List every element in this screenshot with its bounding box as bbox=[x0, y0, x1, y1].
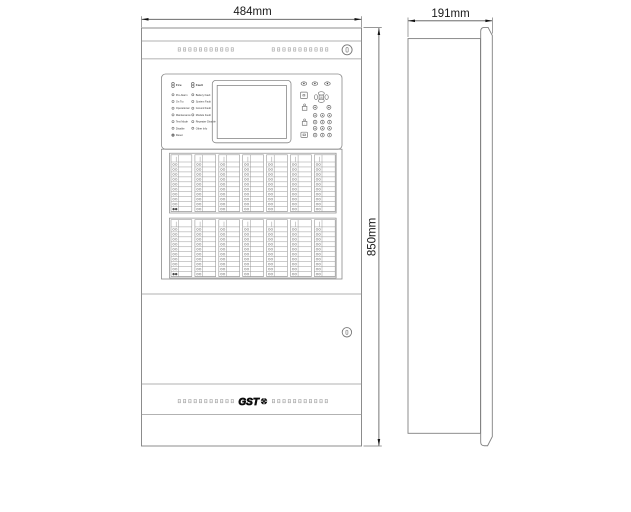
svg-text:On Try: On Try bbox=[176, 100, 184, 104]
svg-text:Reset: Reset bbox=[176, 133, 183, 137]
svg-text:Disable: Disable bbox=[176, 126, 185, 130]
svg-text:Module Fault: Module Fault bbox=[196, 113, 211, 117]
svg-text:Repeater Disable: Repeater Disable bbox=[196, 120, 217, 124]
svg-text:Other Info: Other Info bbox=[196, 126, 208, 130]
svg-text:Fault: Fault bbox=[196, 83, 203, 87]
svg-text:Test Mode: Test Mode bbox=[176, 120, 189, 124]
svg-text:System Fault: System Fault bbox=[196, 100, 211, 104]
svg-text:Operational: Operational bbox=[176, 106, 190, 110]
svg-text:GST: GST bbox=[238, 397, 259, 408]
svg-text:Pre-Alarm: Pre-Alarm bbox=[176, 93, 188, 97]
svg-text:Maintenance: Maintenance bbox=[176, 113, 191, 117]
svg-text:191mm: 191mm bbox=[431, 8, 469, 20]
svg-text:850mm: 850mm bbox=[367, 218, 379, 256]
svg-text:Battery Fault: Battery Fault bbox=[196, 93, 211, 97]
svg-text:Fire: Fire bbox=[176, 83, 182, 87]
svg-text:Ground Fault: Ground Fault bbox=[196, 106, 211, 110]
svg-text:484mm: 484mm bbox=[233, 6, 271, 18]
